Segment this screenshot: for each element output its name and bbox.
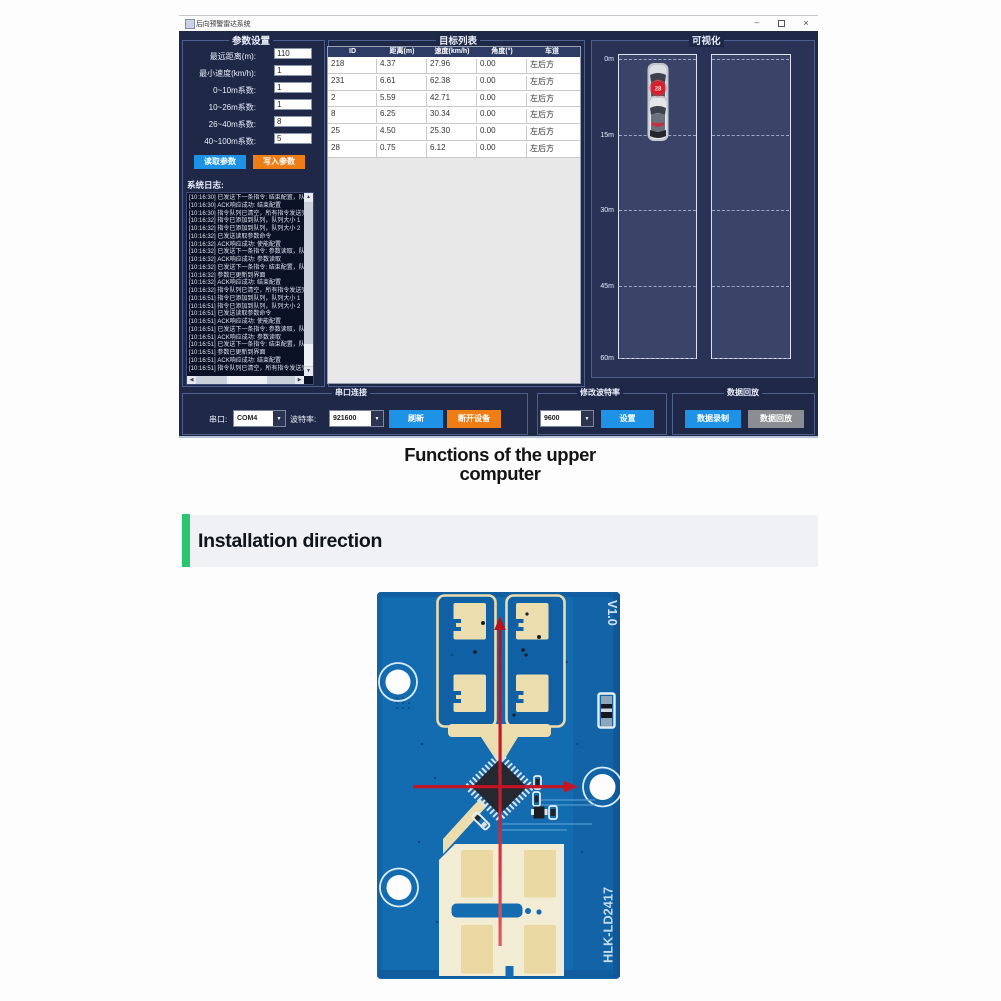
svg-text:V1.0: V1.0 <box>605 600 619 626</box>
svg-text:HLK-LD2417: HLK-LD2417 <box>601 887 616 963</box>
svg-text:28: 28 <box>655 87 662 93</box>
